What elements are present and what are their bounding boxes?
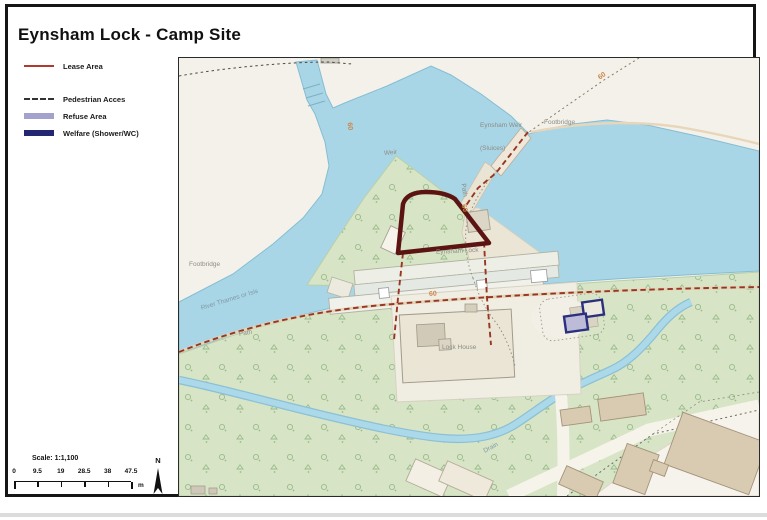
scale-bar-line bbox=[14, 481, 131, 482]
scale-tick-label: 0 bbox=[12, 468, 16, 475]
scale-tick bbox=[61, 482, 63, 487]
refuse-area bbox=[564, 314, 588, 333]
lock-house bbox=[399, 304, 514, 383]
legend-item-refuse-area: Refuse Area bbox=[24, 111, 107, 121]
scale-text: Scale: 1:1,100 bbox=[32, 455, 78, 462]
legend-swatch bbox=[24, 113, 54, 119]
scale-tick bbox=[131, 482, 133, 489]
scale-tick-label: 19 bbox=[57, 468, 64, 475]
scale-tick-label: 28.5 bbox=[78, 468, 91, 475]
scale-tick bbox=[84, 482, 86, 487]
legend-swatch bbox=[24, 65, 54, 67]
legend-label: Refuse Area bbox=[63, 112, 107, 121]
page-title: Eynsham Lock - Camp Site bbox=[18, 25, 241, 45]
scale-bar: Scale: 1:1,100 m 09.51928.53847.5 bbox=[14, 455, 164, 497]
scale-tick bbox=[37, 482, 39, 487]
legend-label: Pedestrian Acces bbox=[63, 95, 125, 104]
north-label: N bbox=[155, 456, 160, 465]
legend-label: Welfare (Shower/WC) bbox=[63, 129, 139, 138]
scale-tick bbox=[14, 482, 16, 489]
map-panel: WeirEynsham Weir(Sluices)FootbridgeFootb… bbox=[178, 57, 760, 497]
scale-tick-label: 38 bbox=[104, 468, 111, 475]
legend-item-pedestrian-acces: Pedestrian Acces bbox=[24, 94, 125, 104]
legend-swatch bbox=[24, 98, 54, 100]
scale-unit: m bbox=[138, 482, 144, 489]
legend-swatch bbox=[24, 130, 54, 136]
legend-label: Lease Area bbox=[63, 62, 103, 71]
north-arrow: N bbox=[146, 457, 170, 497]
scale-tick-label: 9.5 bbox=[33, 468, 42, 475]
page-bottom-edge bbox=[0, 513, 767, 517]
map-canvas bbox=[179, 58, 759, 496]
scale-tick-label: 47.5 bbox=[125, 468, 138, 475]
legend-item-welfare-shower-wc-: Welfare (Shower/WC) bbox=[24, 128, 139, 138]
legend-item-lease-area: Lease Area bbox=[24, 61, 103, 71]
scale-tick bbox=[108, 482, 110, 487]
